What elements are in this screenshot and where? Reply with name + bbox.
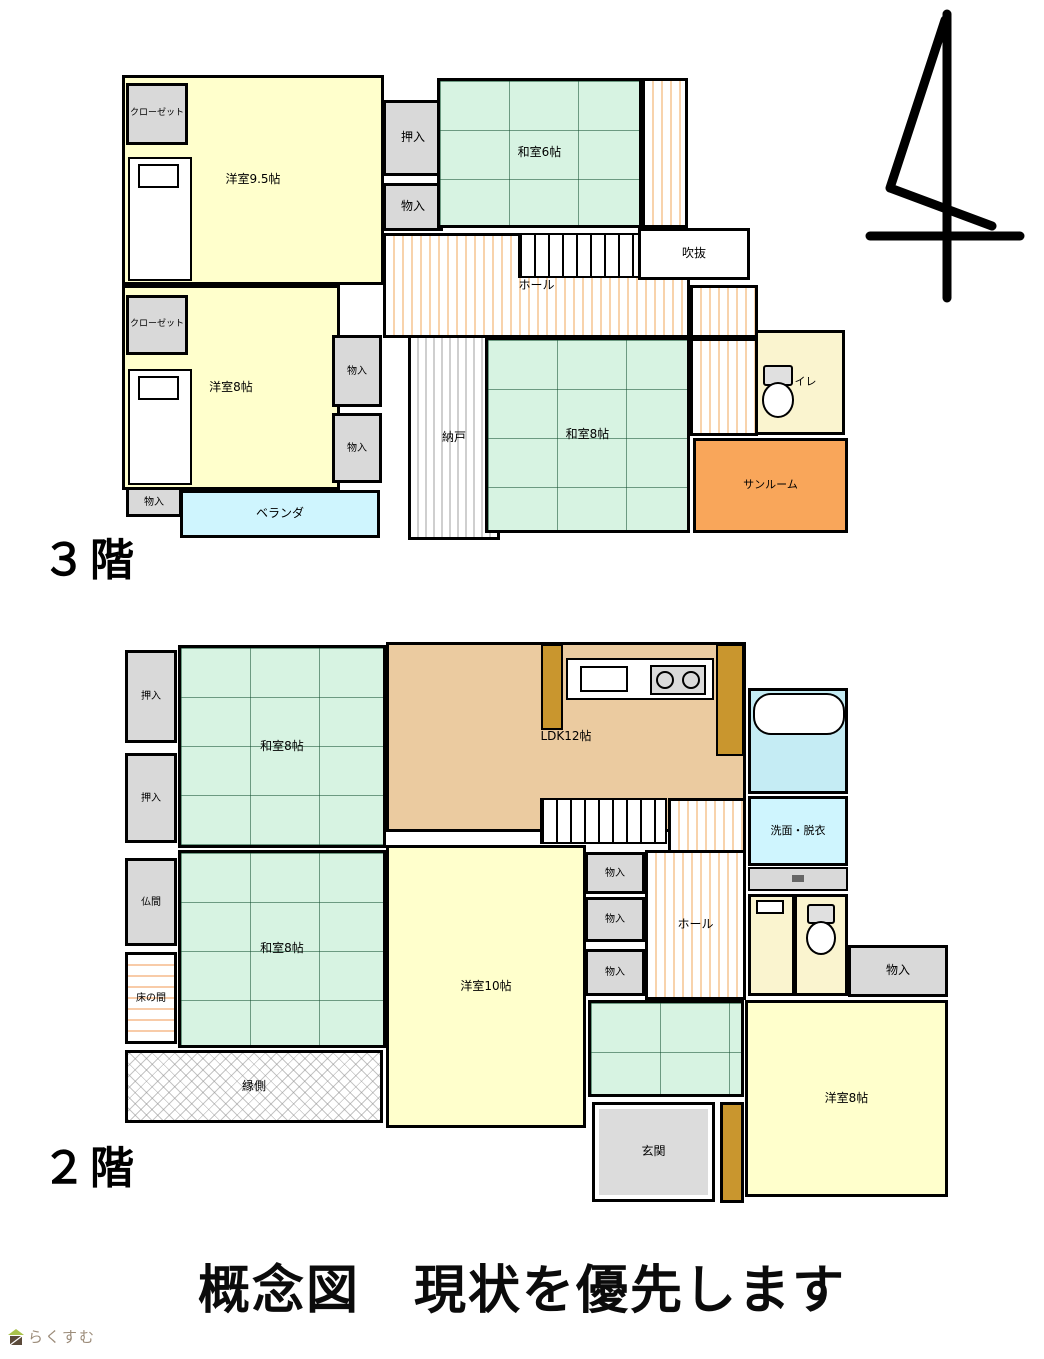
logo-text: らくすむ — [28, 1326, 96, 1347]
room-washitsu-8-2f-n-label: 和室8帖 — [260, 740, 304, 753]
tatami-passage — [588, 1000, 744, 1097]
room-yoshitsu-10-label: 洋室10帖 — [460, 980, 511, 993]
senmen-datsui-label: 洗面・脱衣 — [771, 825, 826, 837]
sunroom-label: サンルーム — [743, 479, 798, 491]
room-washitsu-8-2f-s: 和室8帖 — [178, 850, 386, 1048]
butsuma: 仏間 — [125, 858, 177, 946]
genkan-label: 玄関 — [641, 1145, 665, 1158]
room-yoshitsu-9-5-label: 洋室9.5帖 — [225, 173, 280, 186]
monoire-3f-mid-upper: 物入 — [332, 335, 382, 407]
logo: らくすむ — [8, 1326, 96, 1347]
monoire-2f-se: 物入 — [848, 945, 948, 997]
room-yoshitsu-8-3f-label: 洋室8帖 — [209, 381, 253, 394]
floor2-plan: 押入押入和室8帖LDK12帖洗面・脱衣物入物入物入ホール仏間床の間和室8帖縁側洋… — [122, 640, 952, 1210]
oshiire-2f-lower-label: 押入 — [141, 793, 161, 804]
floor3-label: ３階 — [42, 524, 138, 588]
wc-hand-sink-fixture — [756, 900, 784, 914]
butsuma-label: 仏間 — [141, 897, 161, 908]
monoire-3f-sw: 物入 — [126, 487, 182, 517]
monoire-3f-n: 物入 — [383, 183, 443, 231]
fukinuke: 吹抜 — [638, 228, 750, 280]
kitchen-cab-left-fixture — [541, 644, 563, 730]
sunroom: サンルーム — [693, 438, 848, 533]
floor2-label: ２階 — [42, 1132, 138, 1196]
room-washitsu-8-3f: 和室8帖 — [485, 337, 690, 533]
kitchen-cab-right-fixture — [716, 644, 744, 756]
room-ldk-label: LDK12帖 — [540, 730, 591, 743]
bathtub-fixture — [753, 693, 845, 735]
monoire-3f-n-label: 物入 — [401, 200, 425, 213]
shoe-cabinet — [720, 1102, 744, 1203]
oshiire-2f-lower: 押入 — [125, 753, 177, 843]
veranda: ベランダ — [180, 490, 380, 538]
monoire-3f-mid-upper-label: 物入 — [347, 366, 367, 377]
bed-lower-fixture — [128, 369, 192, 485]
engawa: 縁側 — [125, 1050, 383, 1123]
monoire-3f-mid-lower-label: 物入 — [347, 443, 367, 454]
hall-3f-arm — [690, 338, 758, 436]
hall-2f-main: ホール — [645, 850, 746, 1000]
monoire-2f-c-label: 物入 — [605, 967, 625, 978]
corridor-east-strip — [642, 78, 688, 228]
veranda-label: ベランダ — [256, 507, 304, 520]
room-washitsu-8-3f-label: 和室8帖 — [566, 428, 610, 441]
vanity-fixture — [748, 867, 848, 891]
nando-label: 納戸 — [442, 431, 466, 444]
kitchen-stove-fixture — [650, 665, 706, 695]
room-washitsu-6: 和室6帖 — [437, 78, 642, 228]
monoire-2f-b-label: 物入 — [605, 914, 625, 925]
logo-house-icon — [8, 1329, 24, 1345]
monoire-2f-a: 物入 — [585, 852, 645, 894]
monoire-3f-mid-lower: 物入 — [332, 413, 382, 483]
closet-nw-lower: クローゼット — [126, 295, 188, 355]
room-yoshitsu-10: 洋室10帖 — [386, 845, 586, 1128]
hall-3f-main-label: ホール — [518, 279, 554, 292]
page-title: 概念図 現状を優先します — [0, 1248, 1044, 1323]
hall-3f-link — [690, 285, 758, 338]
toilet-bowl-2f-fixture — [804, 904, 838, 956]
room-yoshitsu-8-2f: 洋室8帖 — [745, 1000, 948, 1197]
room-washitsu-8-2f-n: 和室8帖 — [178, 645, 386, 848]
hall-2f-main-label: ホール — [677, 918, 713, 931]
room-yoshitsu-8-2f-label: 洋室8帖 — [825, 1092, 869, 1105]
fukinuke-label: 吹抜 — [682, 247, 706, 260]
hall-2f-upper — [668, 798, 746, 853]
room-washitsu-8-2f-s-label: 和室8帖 — [260, 942, 304, 955]
north-arrow-icon — [852, 8, 1032, 303]
monoire-2f-b: 物入 — [585, 897, 645, 942]
senmen-datsui: 洗面・脱衣 — [748, 796, 848, 866]
tokonoma-label: 床の間 — [136, 993, 166, 1004]
stairs-3f-fixture — [518, 233, 640, 278]
closet-nw-upper: クローゼット — [126, 83, 188, 145]
kitchen-sink-fixture — [580, 666, 628, 692]
toilet-bowl-3f-fixture — [760, 365, 796, 419]
tokonoma: 床の間 — [125, 952, 177, 1044]
closet-nw-lower-label: クローゼット — [130, 320, 184, 330]
floor3-plan: 洋室9.5帖クローゼット洋室8帖クローゼット物入ベランダ押入物入和室6帖ホール吹… — [120, 73, 852, 545]
stairs-2f-fixture — [540, 798, 667, 844]
monoire-3f-sw-label: 物入 — [144, 497, 164, 508]
closet-nw-upper-label: クローゼット — [130, 109, 184, 119]
monoire-2f-a-label: 物入 — [605, 868, 625, 879]
engawa-label: 縁側 — [242, 1080, 266, 1093]
wc-divider-fixture — [792, 896, 797, 994]
oshiire-2f-upper: 押入 — [125, 650, 177, 743]
oshiire-3f: 押入 — [383, 100, 443, 176]
room-washitsu-6-label: 和室6帖 — [518, 146, 562, 159]
oshiire-2f-upper-label: 押入 — [141, 691, 161, 702]
oshiire-3f-label: 押入 — [401, 131, 425, 144]
bed-upper-fixture — [128, 157, 192, 281]
monoire-2f-se-label: 物入 — [886, 964, 910, 977]
genkan: 玄関 — [592, 1102, 715, 1202]
monoire-2f-c: 物入 — [585, 949, 645, 996]
floorplan-page: 洋室9.5帖クローゼット洋室8帖クローゼット物入ベランダ押入物入和室6帖ホール吹… — [0, 0, 1044, 1359]
